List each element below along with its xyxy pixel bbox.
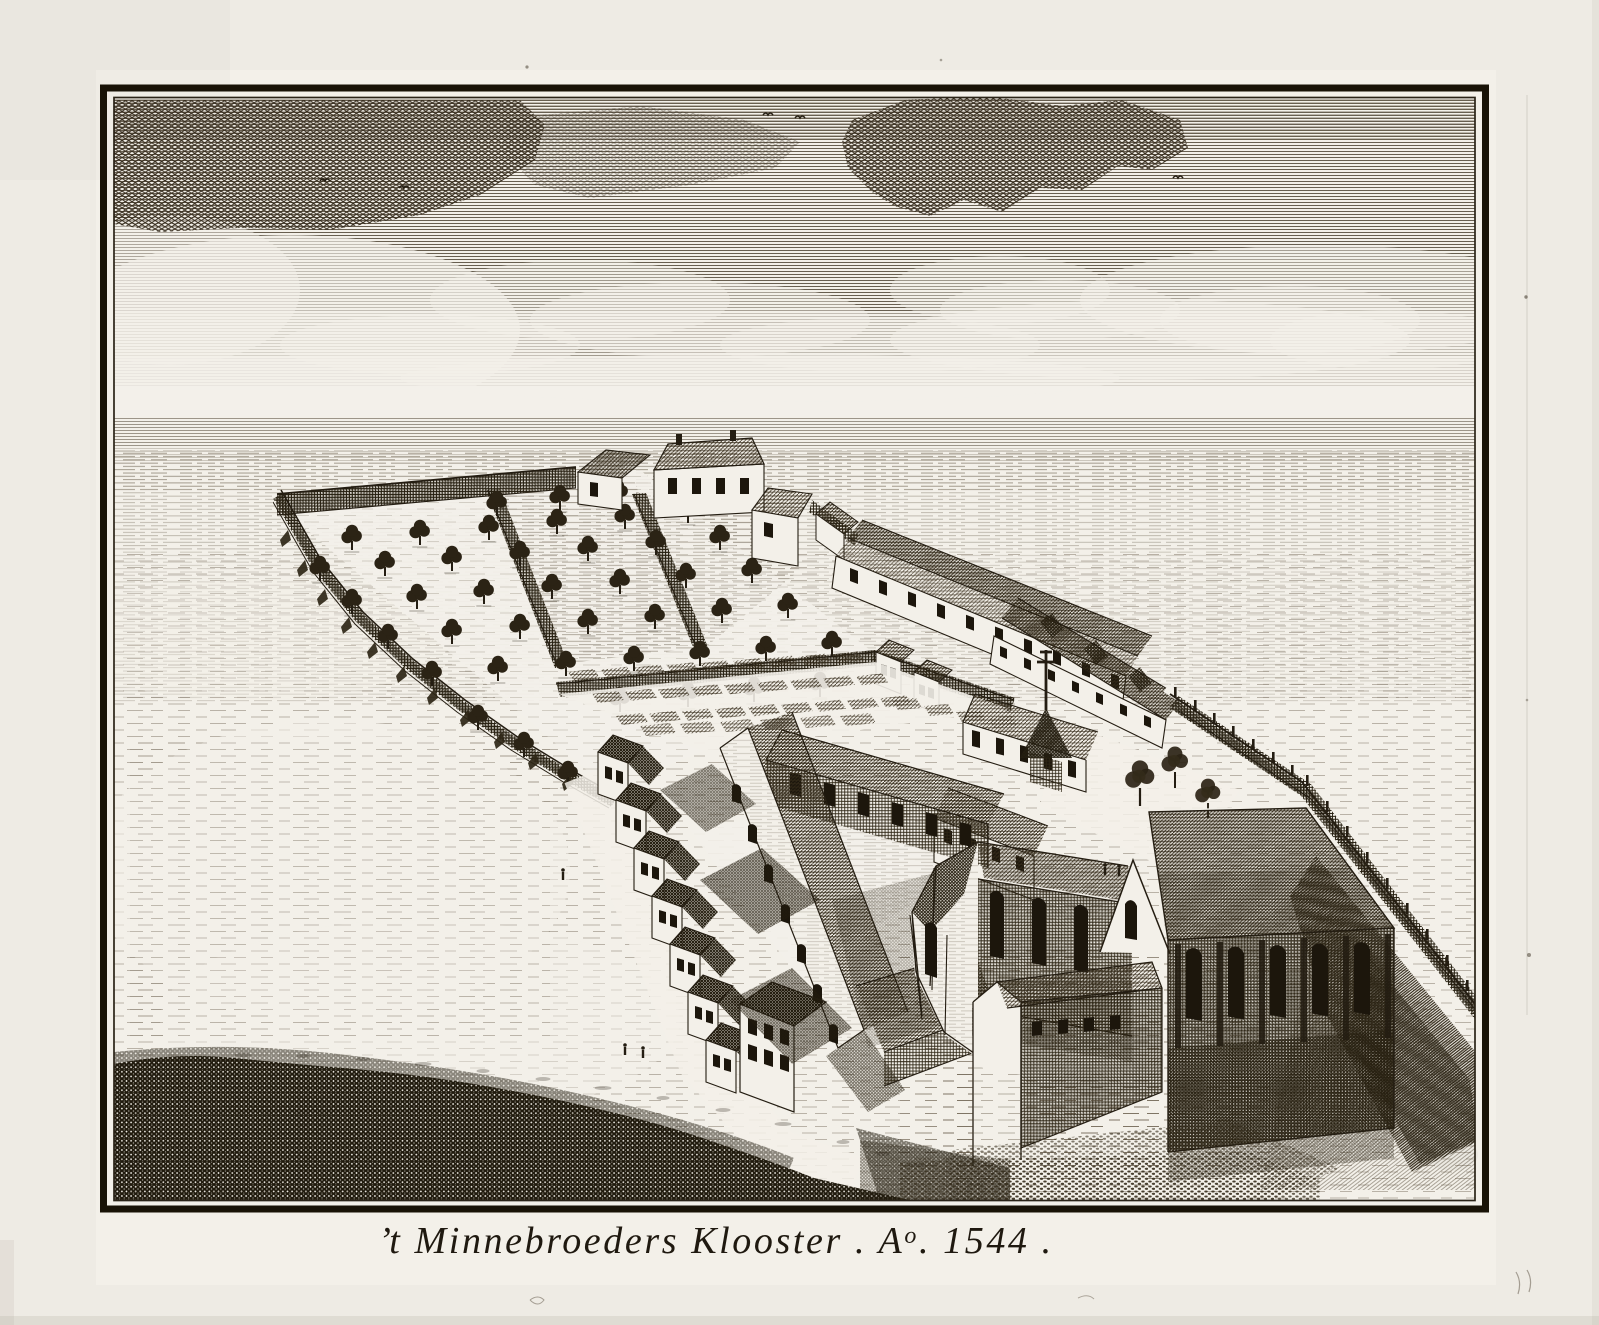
svg-text:’t Minnebroeders Klooster . Ao: ’t Minnebroeders Klooster . Ao. 1544 .: [378, 1220, 1054, 1262]
